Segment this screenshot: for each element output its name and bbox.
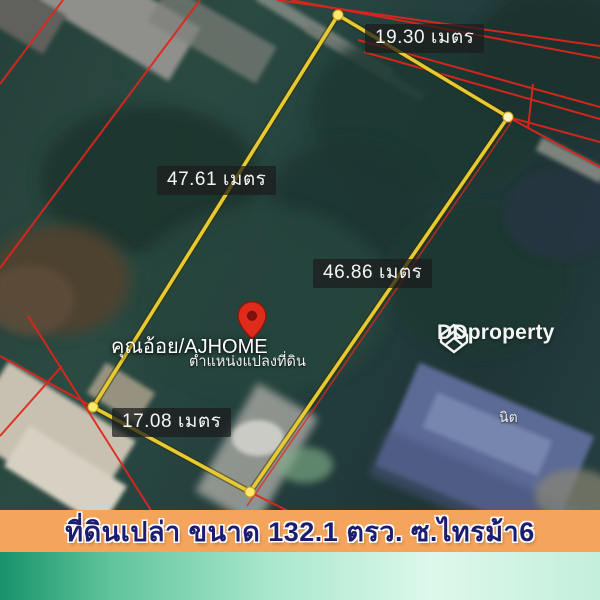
listing-image: 19.30 เมตร 47.61 เมตร 46.86 เมตร 17.08 เ… — [0, 0, 600, 600]
title-banner: ที่ดินเปล่า ขนาด 132.1 ตรว. ซ.ไทรม้า6 — [0, 510, 600, 552]
listing-title: ที่ดินเปล่า ขนาด 132.1 ตรว. ซ.ไทรม้า6 — [65, 510, 534, 553]
contact-footer: AJ HOME CENTER f AJHomeCenter LINE @ajho… — [0, 552, 600, 600]
satellite-map: 19.30 เมตร 47.61 เมตร 46.86 เมตร 17.08 เ… — [0, 0, 600, 510]
location-pin-icon — [0, 0, 600, 510]
pin-label-position: ตำแหน่งแปลงที่ดิน — [189, 350, 306, 373]
ddproperty-house-icon — [437, 321, 471, 355]
partial-map-label: นิต — [499, 407, 518, 429]
ddproperty-watermark: DDproperty — [437, 321, 555, 345]
